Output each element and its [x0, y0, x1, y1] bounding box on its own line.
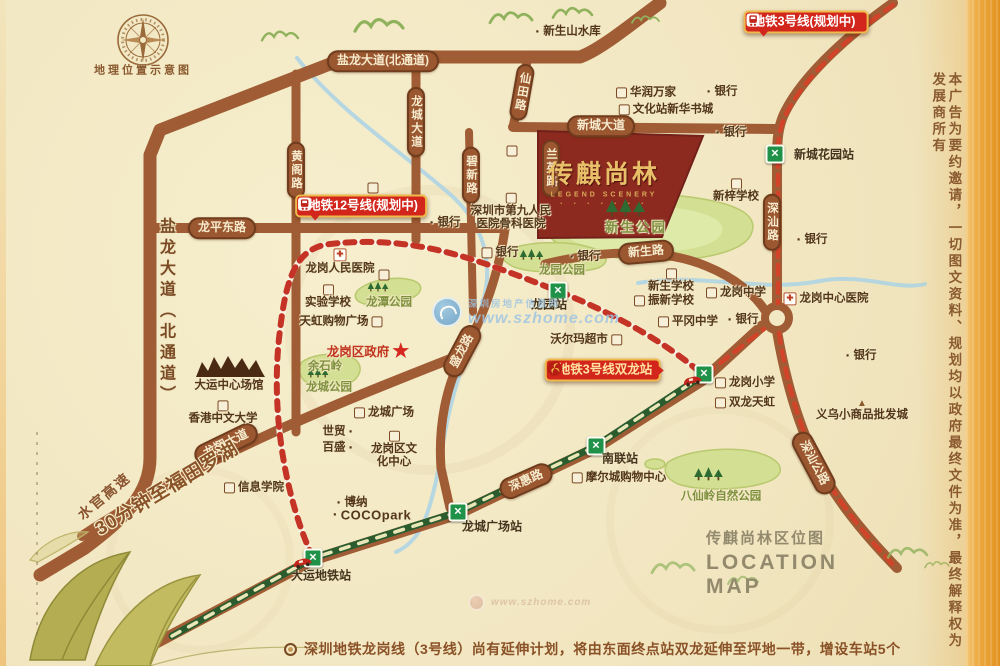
disclaimer-text: 本广告为要约邀请，一切图文资料、规划均以政府最终文件为准，最终解释权为发展商所有 [929, 72, 961, 652]
extension-note: 深圳地铁龙岗线（3号线）尚有延伸计划，将由东面终点站双龙延伸至坪地一带，增设车站… [284, 641, 901, 658]
map-title-en1: LOCATION [706, 551, 838, 575]
watermark-url: www.szhome.com [468, 310, 620, 328]
map-title-cn: 传麒尚林区位图 [706, 528, 838, 551]
road-xiantian [513, 57, 528, 127]
stadium-icon [196, 356, 265, 377]
page-edge-band [966, 0, 1000, 666]
road-xincheng-avenue [513, 127, 775, 129]
location-map-page: 盐龙大道(北通道)盐龙大道（北通道）龙平东路黄阁路龙城大道仙田路新城大道碧新路兰… [0, 0, 1000, 666]
watermark-url-small: www.szhome.com [491, 597, 591, 608]
watermark-logo-icon-small [468, 594, 485, 611]
roundabout [765, 306, 789, 330]
compass-caption: 地理位置示意图 [94, 66, 192, 77]
road-shenshan-north [777, 3, 893, 305]
map-title-en2: MAP [706, 575, 838, 599]
compass-icon [118, 15, 168, 65]
watermark-center: 深圳房地产信息网 www.szhome.com [432, 296, 620, 328]
left-edge-shade [0, 0, 6, 666]
map-title: 传麒尚林区位图 LOCATION MAP [706, 528, 838, 599]
road-bixin [469, 132, 473, 312]
note-bullet-icon [284, 643, 297, 656]
watermark-bottom: www.szhome.com [468, 594, 591, 611]
map-canvas [0, 0, 1000, 666]
note-text: 深圳地铁龙岗线（3号线）尚有延伸计划，将由东面终点站双龙延伸至坪地一带，增设车站… [304, 641, 901, 658]
watermark-logo-icon [432, 297, 462, 327]
watermark-site-name: 深圳房地产信息网 [468, 296, 620, 310]
